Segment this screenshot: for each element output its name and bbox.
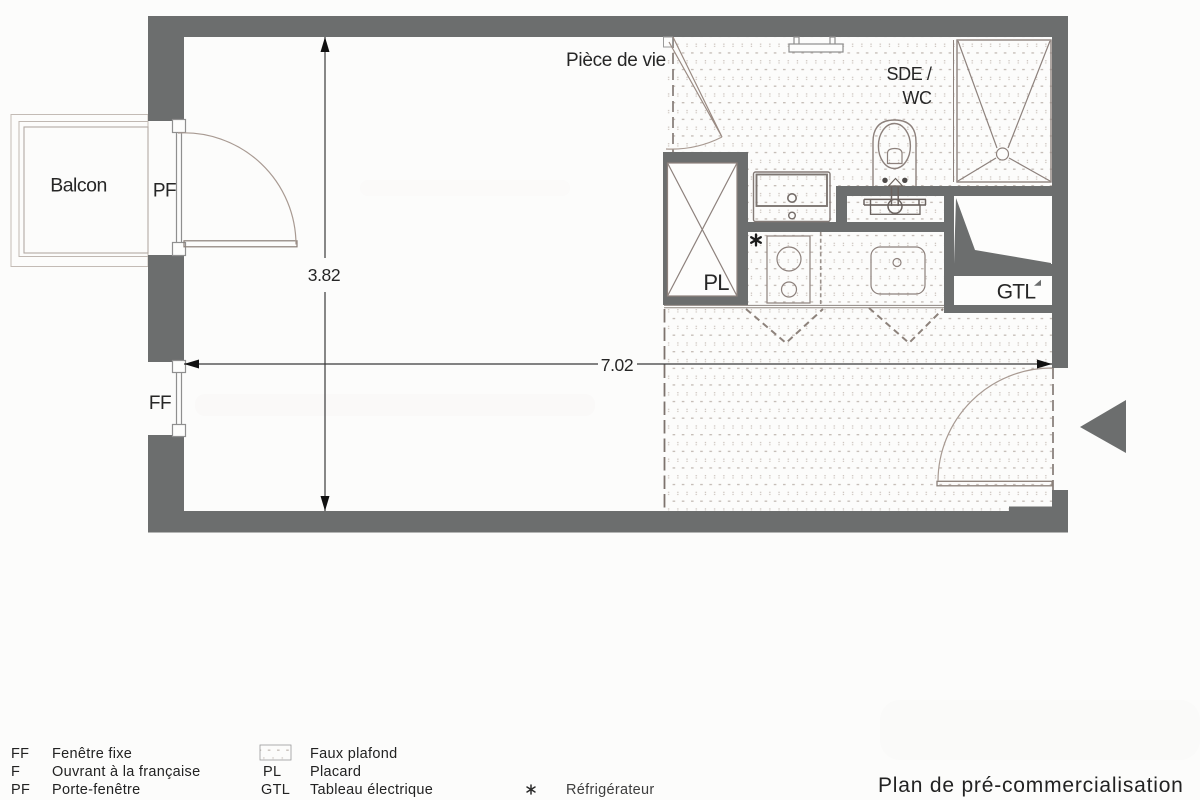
svg-text:Réfrigérateur: Réfrigérateur	[566, 782, 655, 798]
svg-text:PL: PL	[263, 764, 281, 780]
svg-text:Faux plafond: Faux plafond	[310, 746, 397, 762]
svg-text:3.82: 3.82	[308, 265, 340, 285]
svg-text:Tableau électrique: Tableau électrique	[310, 782, 433, 798]
svg-text:PF: PF	[11, 782, 30, 798]
svg-text:Balcon: Balcon	[50, 175, 107, 197]
svg-text:FF: FF	[149, 393, 171, 414]
svg-text:PL: PL	[703, 270, 729, 295]
svg-text:SDE /: SDE /	[886, 64, 931, 84]
svg-text:GTL: GTL	[261, 782, 290, 798]
svg-text:WC: WC	[902, 88, 932, 108]
svg-text:Porte-fenêtre: Porte-fenêtre	[52, 782, 141, 798]
svg-text:Placard: Placard	[310, 764, 361, 780]
svg-text:7.02: 7.02	[601, 355, 633, 375]
svg-text:PF: PF	[153, 181, 176, 202]
svg-text:Plan de pré-commercialisation: Plan de pré-commercialisation	[878, 774, 1184, 797]
svg-text:Fenêtre fixe: Fenêtre fixe	[52, 746, 132, 762]
svg-text:FF: FF	[11, 746, 29, 762]
svg-text:Pièce de vie: Pièce de vie	[566, 50, 666, 71]
svg-text:F: F	[11, 764, 20, 780]
svg-text:GTL: GTL	[997, 281, 1036, 304]
svg-text:Ouvrant à la française: Ouvrant à la française	[52, 764, 200, 780]
